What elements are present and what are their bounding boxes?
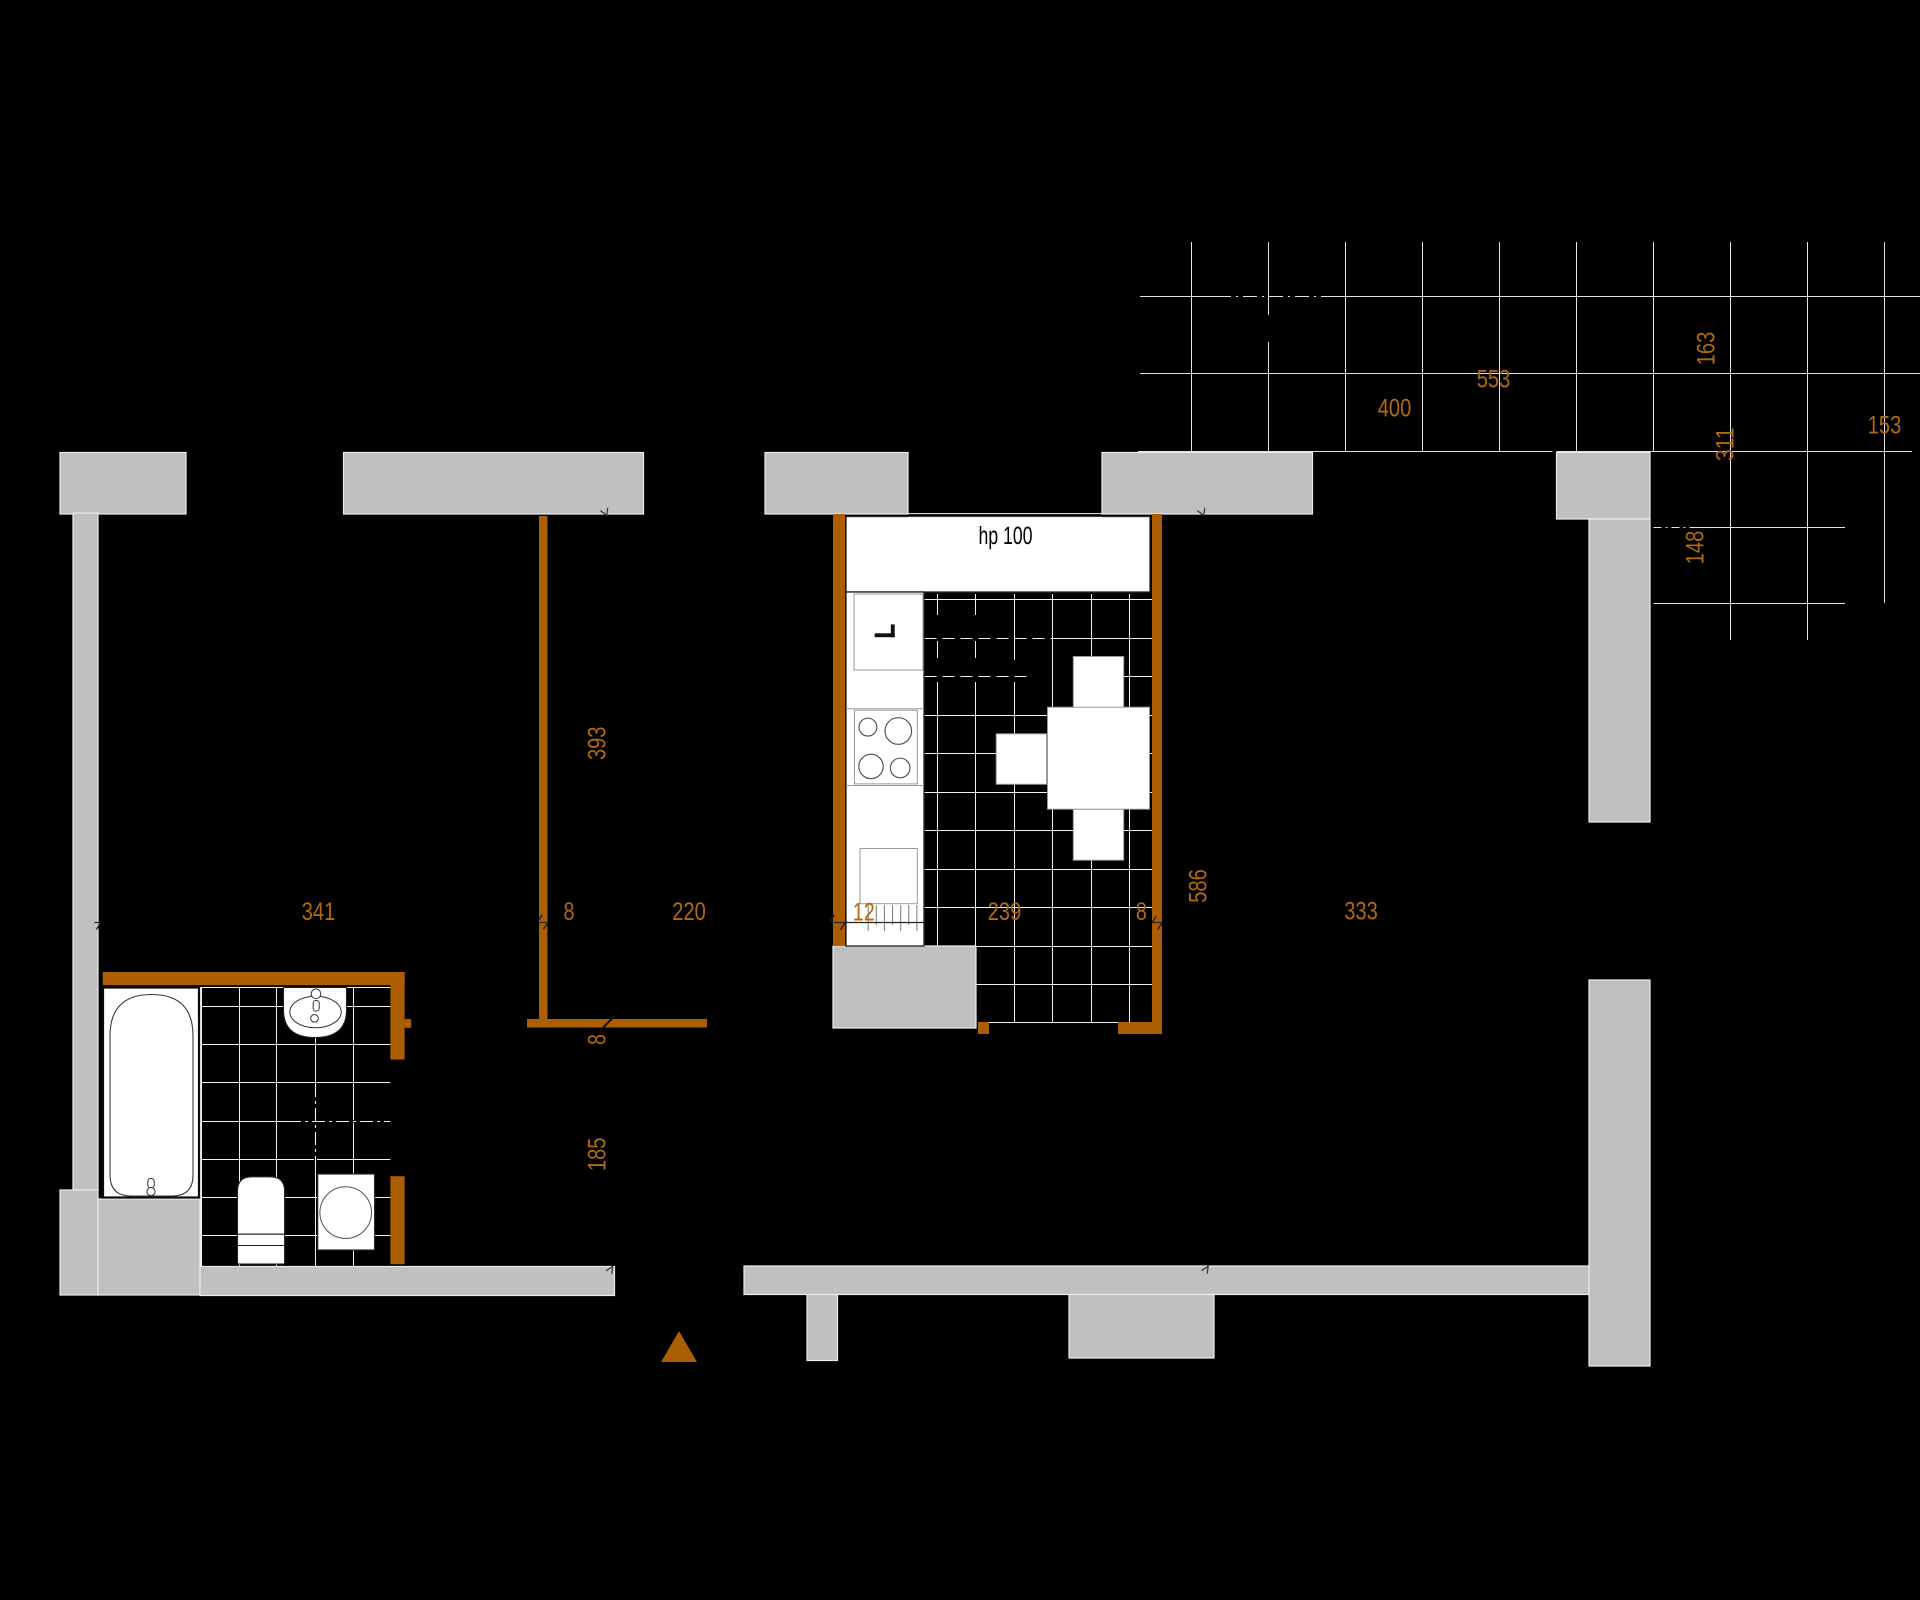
- svg-text:8: 8: [564, 898, 575, 926]
- svg-text:220: 220: [672, 898, 706, 926]
- svg-text:553: 553: [1477, 366, 1511, 394]
- svg-text:8: 8: [584, 1034, 612, 1045]
- svg-text:400: 400: [1378, 395, 1412, 423]
- svg-text:333: 333: [1344, 898, 1378, 926]
- svg-text:239: 239: [988, 898, 1022, 926]
- svg-text:341: 341: [302, 898, 336, 926]
- svg-text:8: 8: [1136, 898, 1147, 926]
- svg-text:586: 586: [1185, 869, 1213, 903]
- svg-text:311: 311: [1712, 427, 1740, 461]
- svg-text:393: 393: [584, 727, 612, 761]
- svg-text:163: 163: [1693, 332, 1721, 366]
- svg-text:148: 148: [1682, 531, 1710, 565]
- svg-text:12: 12: [853, 899, 875, 927]
- svg-text:153: 153: [1868, 412, 1902, 440]
- svg-text:185: 185: [584, 1138, 612, 1172]
